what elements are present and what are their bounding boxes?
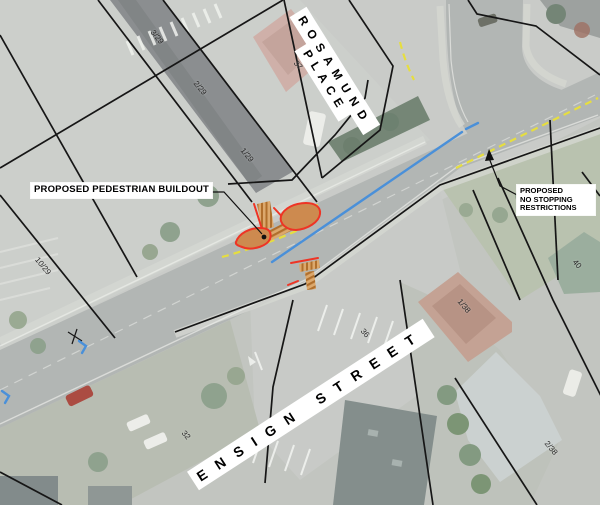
aerial-plan-map: PROPOSED PEDESTRIAN BUILDOUT PROPOSED NO… <box>0 0 600 505</box>
no-stopping-annotation: PROPOSED NO STOPPING RESTRICTIONS <box>517 185 595 215</box>
map-base <box>0 0 600 505</box>
buildout-annotation: PROPOSED PEDESTRIAN BUILDOUT <box>31 183 212 198</box>
